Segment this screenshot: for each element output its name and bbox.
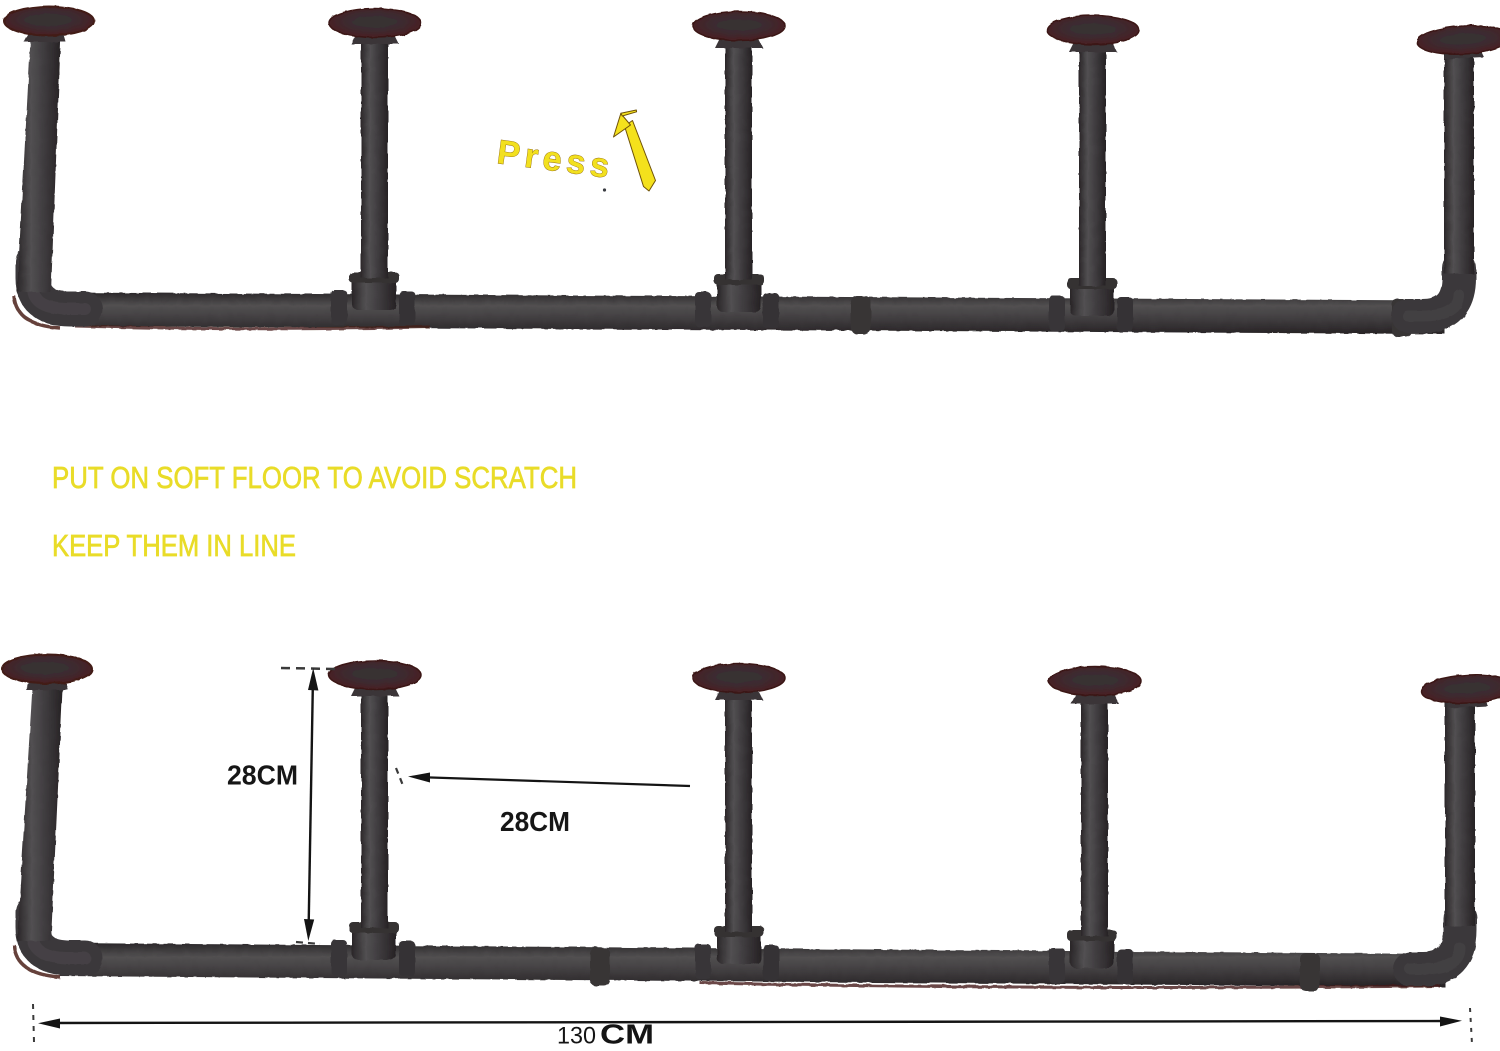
svg-text:Press: Press <box>495 133 617 186</box>
svg-text:KEEP THEM IN LINE: KEEP THEM IN LINE <box>52 528 296 563</box>
svg-text:28CM: 28CM <box>227 760 298 791</box>
svg-text:130CM: 130CM <box>557 1019 654 1050</box>
svg-text:28CM: 28CM <box>500 806 570 837</box>
svg-text:PUT ON SOFT FLOOR TO AVOID SCR: PUT ON SOFT FLOOR TO AVOID SCRATCH <box>52 460 577 495</box>
